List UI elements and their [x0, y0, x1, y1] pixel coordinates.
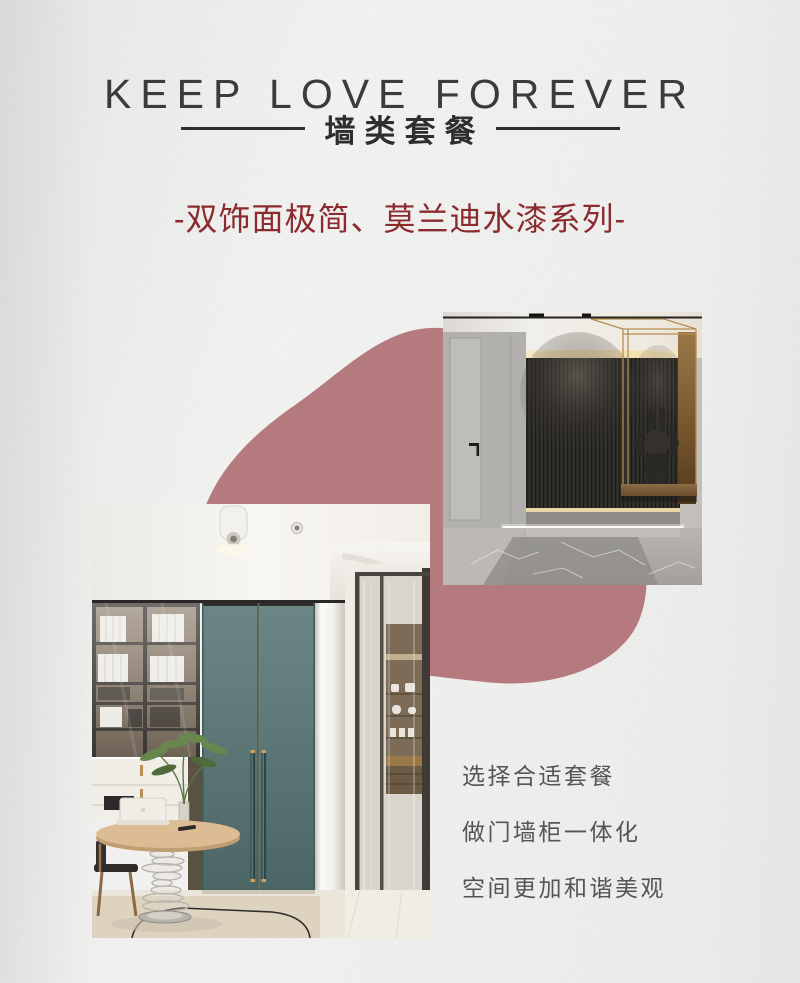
- bronze-back-panel: [678, 332, 696, 504]
- door-floor-shadow: [202, 890, 315, 894]
- benefit-item: 做门墙柜一体化: [462, 818, 666, 846]
- rug: [92, 896, 320, 938]
- recessed-light: [291, 522, 302, 533]
- photo-living-room: [92, 504, 430, 938]
- door-seam-brass: [259, 603, 260, 890]
- display-shelf: [621, 484, 697, 496]
- ceiling-track: [92, 600, 345, 603]
- benefit-item: 空间更加和谐美观: [462, 874, 666, 902]
- subtitle: 墙类套餐: [325, 106, 485, 151]
- led-strip-bottom: [526, 508, 680, 512]
- shelf-shadow: [621, 496, 697, 502]
- spot-light-fixture: [217, 506, 251, 556]
- base-disc-inner: [147, 912, 183, 920]
- entry-ceiling-vent: [582, 314, 591, 317]
- subtitle-left-rule: [181, 127, 305, 130]
- subtitle-row: 墙类套餐: [0, 106, 800, 151]
- floor-runner: [483, 537, 658, 585]
- benefit-item: 选择合适套餐: [462, 762, 666, 790]
- spotlight-wash: [520, 332, 636, 456]
- benefits-list: 选择合适套餐 做门墙柜一体化 空间更加和谐美观: [462, 762, 666, 930]
- entry-ceiling-track: [443, 317, 702, 319]
- laptop: [116, 798, 170, 825]
- glass-sliding-door: [355, 568, 430, 938]
- photo-entryway: [443, 312, 702, 585]
- poster-canvas: KEEP LOVE FOREVER 墙类套餐 -双饰面极简、莫兰迪水漆系列-: [0, 0, 800, 983]
- subtitle-right-rule: [496, 127, 620, 130]
- series-title: -双饰面极简、莫兰迪水漆系列-: [0, 194, 800, 240]
- entry-door: [450, 338, 481, 520]
- pantry-shelves: [386, 624, 424, 794]
- floor-reflection: [526, 528, 680, 537]
- curved-column: [315, 603, 345, 890]
- brass-pull: [140, 765, 143, 776]
- entry-ceiling-vent: [529, 314, 544, 317]
